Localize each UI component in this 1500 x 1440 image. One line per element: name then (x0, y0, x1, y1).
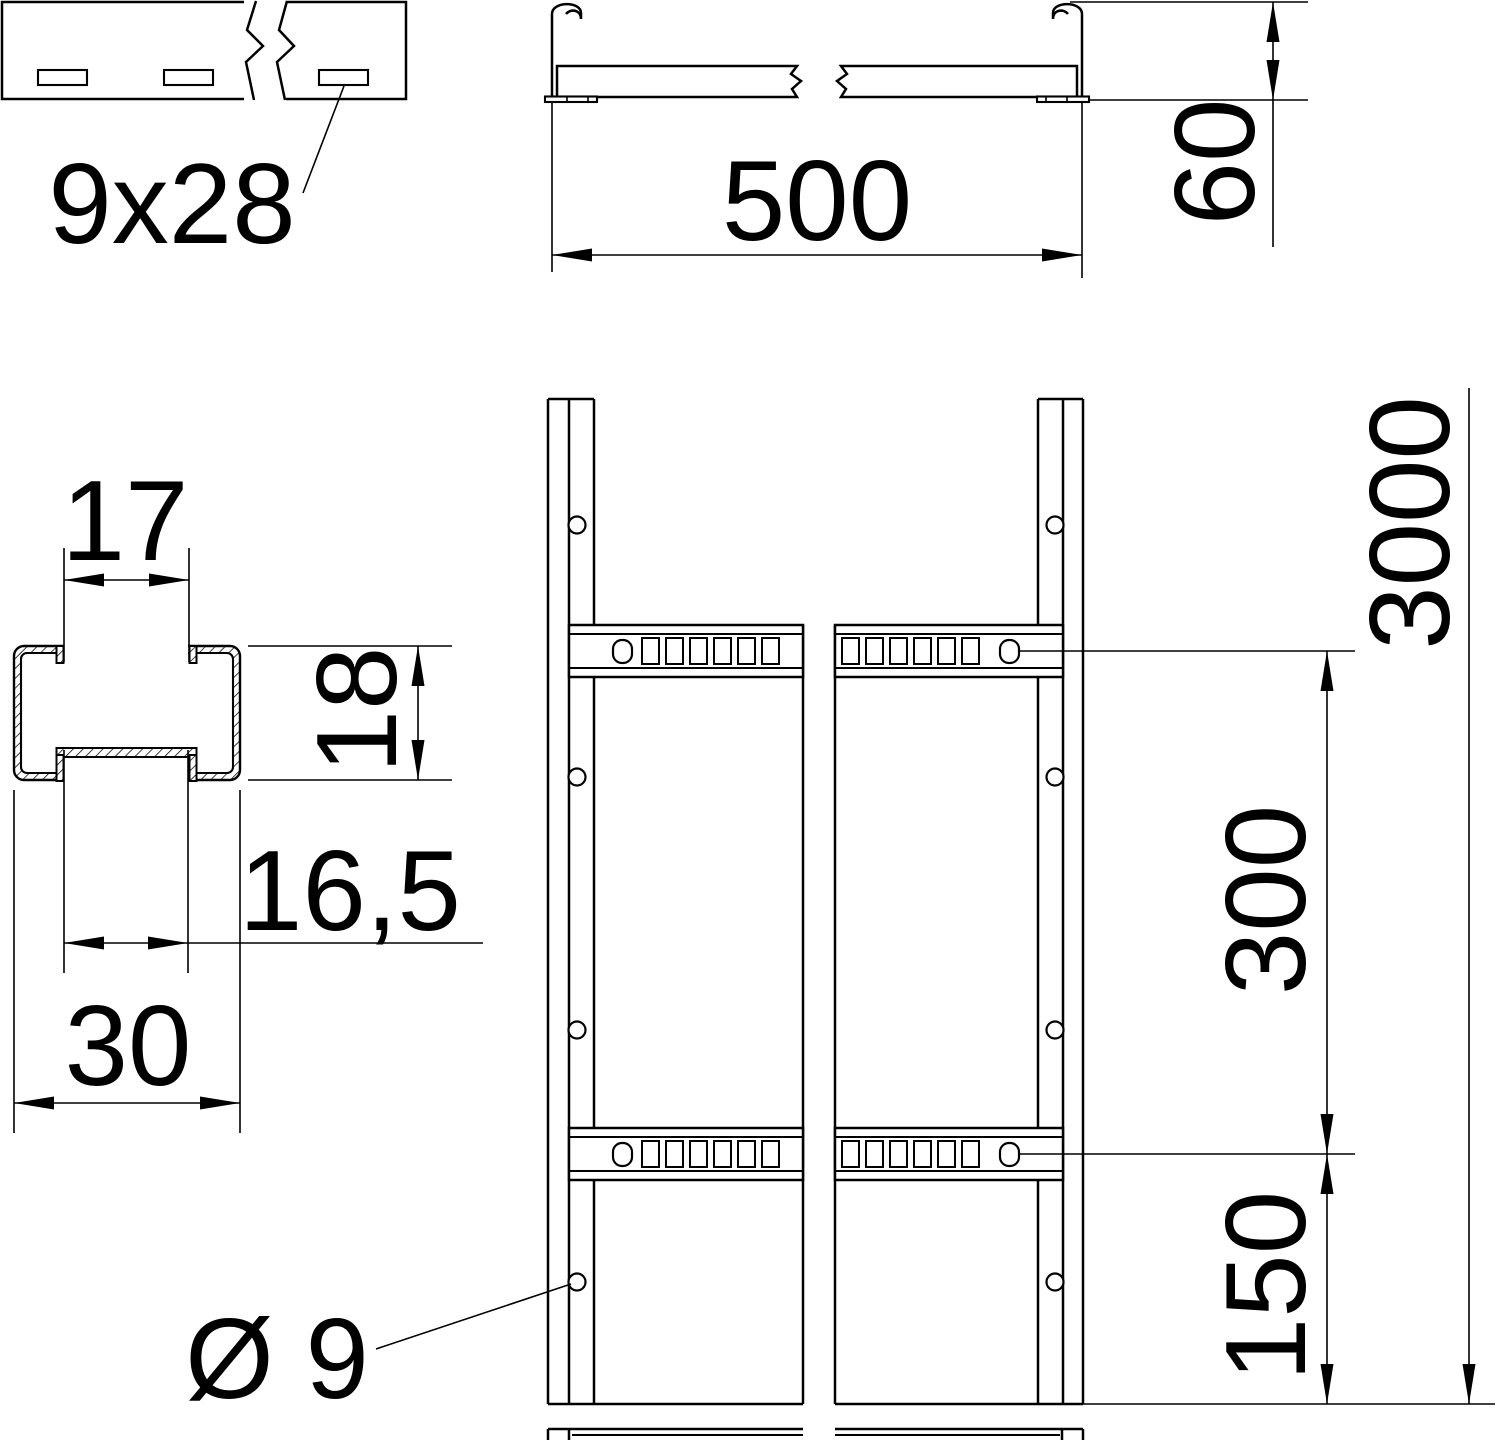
profile-right-lip (190, 646, 197, 663)
rung-slot (738, 638, 755, 664)
dimension-arrowhead (552, 249, 592, 262)
rung-perforations (613, 638, 1019, 1167)
rung-pitch-label: 300 (1203, 805, 1330, 995)
right-side-rail (1038, 399, 1083, 1404)
dimension-arrowhead (1042, 249, 1082, 262)
rung-slot (642, 1141, 659, 1167)
rung-slot (914, 1141, 931, 1167)
rung-slot (714, 1141, 731, 1167)
rung-slot (938, 1141, 955, 1167)
rung-slot (666, 1141, 683, 1167)
dimension-arrowhead (1321, 651, 1334, 691)
rail-hole (569, 769, 586, 786)
slot-size-label: 9x28 (48, 141, 295, 268)
profile-left-lip (57, 646, 64, 663)
rung-profile-view: 17 18 16,5 30 (14, 458, 483, 1133)
dimension-30: 30 (14, 790, 240, 1133)
recess-label: 16,5 (239, 828, 461, 955)
slot-leader-line (303, 86, 344, 193)
rung-slot (642, 638, 659, 664)
rail-hole (1047, 1274, 1064, 1291)
opening-label: 17 (62, 458, 189, 585)
end-spacing-label: 150 (1203, 1191, 1330, 1381)
hole-diameter-callout: Ø 9 (185, 1284, 571, 1423)
rung-slot (866, 638, 883, 664)
rail-side-view: 9x28 (2, 0, 406, 268)
dimension-3000: 3000 (1347, 388, 1474, 1404)
rung-slot (738, 1141, 755, 1167)
width-label: 500 (722, 138, 912, 265)
technical-drawing-page: 9x28 500 60 (0, 0, 1500, 1440)
rung-slot (842, 638, 859, 664)
rung-slot (690, 1141, 707, 1167)
dimension-arrowhead (1463, 1364, 1476, 1404)
rung-slot (690, 638, 707, 664)
drawing-canvas: 9x28 500 60 (0, 0, 1500, 1440)
rung-oval-slot (1000, 1143, 1019, 1166)
rung-slot (842, 1141, 859, 1167)
hole-diameter-label: Ø 9 (185, 1296, 369, 1423)
right-foot-flange (1037, 97, 1089, 103)
dimension-17: 17 (62, 458, 189, 662)
rail-slot (319, 70, 368, 85)
rung-oval-slot (613, 640, 632, 663)
left-side-rail (548, 399, 594, 1404)
rail-slot (38, 70, 87, 85)
dimension-arrowhead (148, 937, 188, 950)
dimension-18: 18 (248, 646, 452, 780)
rung-slot (866, 1141, 883, 1167)
rung-slot (962, 638, 979, 664)
hole-leader-line (376, 1284, 571, 1349)
rung-oval-slot (1000, 640, 1019, 663)
rail-hole (569, 1274, 586, 1291)
profile-left-step (57, 755, 64, 781)
dimension-arrowhead (1321, 1154, 1334, 1194)
rail-hole (569, 1022, 586, 1039)
rail-hole (569, 517, 586, 534)
dimension-arrowhead (1267, 60, 1280, 100)
profile-width-label: 30 (65, 983, 192, 1110)
rail-hole (1047, 517, 1064, 534)
rung-slot (962, 1141, 979, 1167)
rung-slot (666, 638, 683, 664)
bottom-break-continuation (548, 1429, 1083, 1440)
cross-section-view: 500 60 (545, 2, 1308, 278)
rung-slot (890, 1141, 907, 1167)
rung-slot (890, 638, 907, 664)
dimension-arrowhead (1321, 1114, 1334, 1154)
dimension-150: 150 (1203, 1154, 1330, 1404)
profile-right-step (190, 755, 197, 781)
dimension-arrowhead (14, 1097, 54, 1110)
rung-slot (938, 638, 955, 664)
rung-slot (714, 638, 731, 664)
rail-hole (1047, 769, 1064, 786)
rung-bar-left (557, 66, 801, 97)
rung-slot (914, 638, 931, 664)
rung-oval-slot (613, 1143, 632, 1166)
left-foot-flange (545, 97, 597, 103)
dimension-500: 500 (552, 103, 1082, 278)
length-label: 3000 (1347, 396, 1474, 650)
rung-slot (762, 1141, 779, 1167)
profile-bottom-bar (57, 748, 197, 757)
rail-hole (1047, 1022, 1064, 1039)
rung-bar-right (837, 66, 1077, 97)
height-label: 60 (1152, 99, 1279, 226)
dimension-300: 300 (1203, 651, 1330, 1154)
dimension-arrowhead (64, 937, 104, 950)
rail-slot (164, 70, 213, 85)
profile-height-label: 18 (294, 647, 421, 774)
dimension-arrowhead (1321, 1364, 1334, 1404)
rung-slot (762, 638, 779, 664)
dimension-arrowhead (200, 1097, 240, 1110)
dimension-arrowhead (1267, 2, 1280, 42)
